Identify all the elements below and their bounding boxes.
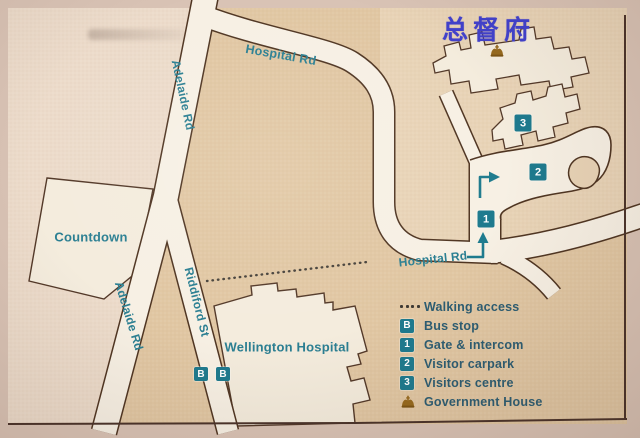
visitors-centre-badge: 3 — [515, 115, 532, 132]
visitor-carpark-badge: 2 — [530, 164, 547, 181]
legend-row-walking-access: Walking access — [400, 297, 543, 316]
crown-legend-icon — [400, 395, 424, 408]
legend-label: Gate & intercom — [424, 338, 524, 352]
visitors-centre-legend-badge: 3 — [400, 376, 414, 390]
carpark-legend-badge: 2 — [400, 357, 414, 371]
legend-row-gate-intercom: 1 Gate & intercom — [400, 335, 543, 354]
gate-intercom-badge: 1 — [478, 211, 495, 228]
legend-label: Walking access — [424, 300, 519, 314]
legend-row-visitor-carpark: 2 Visitor carpark — [400, 354, 543, 373]
legend: Walking access B Bus stop 1 Gate & inter… — [400, 297, 543, 411]
overlay-title: 总督府 — [442, 10, 535, 47]
legend-row-visitors-centre: 3 Visitors centre — [400, 373, 543, 392]
walking-dots-icon — [400, 305, 424, 308]
bus-stop-legend-badge: B — [400, 319, 414, 333]
faint-watermark — [88, 29, 186, 40]
map-photo: 总督府 Hospital Rd Adelaide Rd Adelaide Rd … — [0, 0, 640, 438]
label-countdown: Countdown — [54, 230, 127, 245]
bus-stop-badge-2: B — [216, 367, 230, 381]
legend-label: Visitors centre — [424, 376, 514, 390]
label-wellington-hospital: Wellington Hospital — [225, 340, 350, 355]
hospital-area-map — [0, 0, 640, 438]
carpark-loop-island — [569, 157, 600, 189]
bus-stop-badge-1: B — [194, 367, 208, 381]
legend-row-government-house: Government House — [400, 392, 543, 411]
legend-label: Government House — [424, 395, 543, 409]
legend-label: Visitor carpark — [424, 357, 514, 371]
gate-legend-badge: 1 — [400, 338, 414, 352]
legend-row-bus-stop: B Bus stop — [400, 316, 543, 335]
legend-label: Bus stop — [424, 319, 479, 333]
